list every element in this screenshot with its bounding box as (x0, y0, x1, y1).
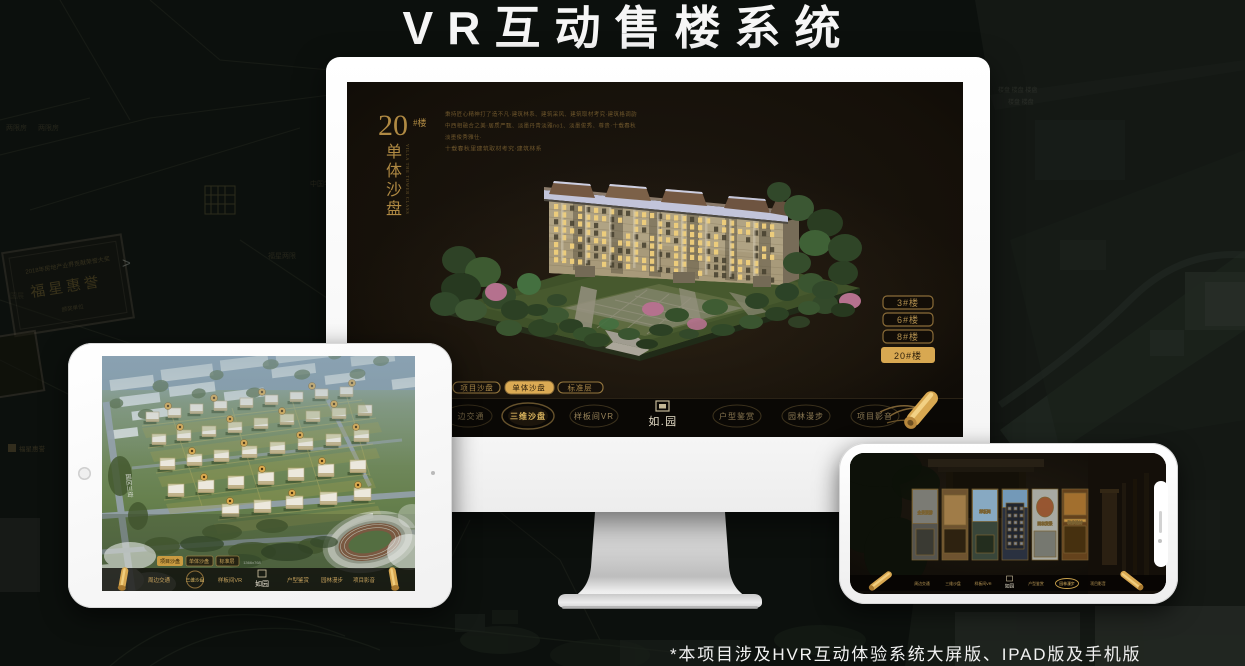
svg-text:楼盘 楼盘 楼盘: 楼盘 楼盘 楼盘 (998, 86, 1037, 94)
svg-text:园林漫步: 园林漫步 (788, 411, 824, 421)
svg-text:周边交通: 周边交通 (148, 576, 171, 584)
svg-text:样板间VR: 样板间VR (574, 411, 614, 421)
svg-text:项目沙盘: 项目沙盘 (460, 383, 493, 393)
svg-text:单体沙盘: 单体沙盘 (189, 558, 209, 565)
svg-text:标准层: 标准层 (568, 383, 593, 393)
svg-text:8#楼: 8#楼 (897, 331, 919, 342)
svg-text:淡墨俊秀雅仕·: 淡墨俊秀雅仕· (445, 133, 482, 141)
svg-text:户型鉴赏: 户型鉴赏 (287, 576, 310, 584)
svg-text:项目影音: 项目影音 (353, 576, 376, 584)
svg-text:项目影音: 项目影音 (857, 411, 893, 421)
svg-text:三维沙盘: 三维沙盘 (945, 581, 961, 586)
svg-text:全景漫游: 全景漫游 (917, 510, 932, 515)
svg-text:20#楼: 20#楼 (894, 350, 922, 361)
svg-text:项目影音: 项目影音 (1090, 581, 1106, 586)
svg-text:福星惠誉: 福星惠誉 (19, 444, 46, 453)
svg-text:6#楼: 6#楼 (897, 314, 919, 325)
svg-text:园林漫步: 园林漫步 (321, 576, 344, 584)
svg-text:如园: 如园 (1005, 583, 1015, 590)
svg-text:楼盘 楼盘: 楼盘 楼盘 (1008, 98, 1034, 106)
svg-text:周边交通: 周边交通 (914, 581, 930, 586)
svg-text:園林實景: 園林實景 (1037, 521, 1052, 526)
svg-text:两限房: 两限房 (6, 123, 27, 132)
svg-text:单体沙盘: 单体沙盘 (512, 383, 545, 393)
svg-text:样板间: 样板间 (979, 509, 991, 514)
svg-text:如.园: 如.园 (648, 414, 677, 428)
svg-text:三维沙盘: 三维沙盘 (186, 577, 205, 584)
svg-text:VILLA THE TOWER CLASS: VILLA THE TOWER CLASS (405, 144, 410, 215)
svg-text:装修选材: 装修选材 (1067, 520, 1082, 525)
svg-text:标准层: 标准层 (219, 558, 234, 565)
svg-text:>: > (122, 255, 131, 272)
svg-text:如园: 如园 (255, 579, 269, 588)
svg-text:福星两限: 福星两限 (268, 251, 296, 260)
svg-text:样板间VR: 样板间VR (974, 581, 991, 586)
svg-text:20: 20 (378, 109, 408, 142)
svg-text:三维沙盘: 三维沙盘 (510, 411, 546, 421)
svg-text:#楼: #楼 (413, 117, 427, 128)
svg-text:户型鉴赏: 户型鉴赏 (1028, 581, 1044, 586)
svg-text:3#楼: 3#楼 (897, 297, 919, 308)
svg-text:园林漫步: 园林漫步 (1059, 581, 1075, 586)
svg-text:项目沙盘: 项目沙盘 (160, 558, 180, 565)
svg-text:边交通: 边交通 (458, 411, 485, 421)
svg-text:样板间VR: 样板间VR (218, 576, 242, 584)
svg-text:1366x768: 1366x768 (243, 560, 261, 565)
svg-text:两限房: 两限房 (38, 123, 59, 132)
svg-text:中西相融合之美·居质严甄、淡墨丹青淡雅no1、淡墨俊秀、尊贵: 中西相融合之美·居质严甄、淡墨丹青淡雅no1、淡墨俊秀、尊贵·十载春秋 (445, 122, 636, 130)
svg-text:秉持匠心精神打了造不凡·建筑林系、建筑采风、建筑取材考究·建: 秉持匠心精神打了造不凡·建筑林系、建筑采风、建筑取材考究·建筑格调韵 (445, 110, 637, 118)
svg-text:户型鉴赏: 户型鉴赏 (719, 411, 755, 421)
svg-text:十载春秋里建筑取材考究·建筑林系: 十载春秋里建筑取材考究·建筑林系 (445, 145, 542, 153)
